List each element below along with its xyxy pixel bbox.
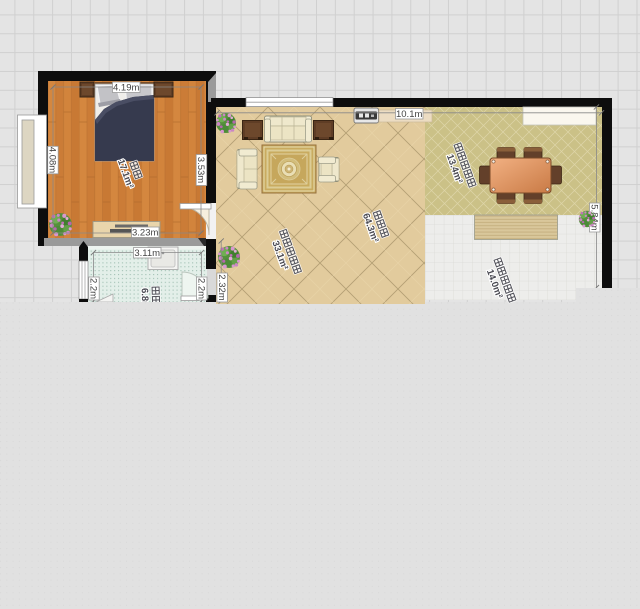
svg-text:2.2m: 2.2m [88, 278, 99, 299]
svg-text:3.23m: 3.23m [132, 227, 158, 238]
svg-text:4.19m: 4.19m [113, 82, 139, 93]
svg-text:2.32m: 2.32m [216, 274, 227, 300]
svg-text:3.53m: 3.53m [195, 157, 206, 183]
svg-text:3.11m: 3.11m [134, 248, 160, 259]
svg-text:4.08m: 4.08m [47, 147, 58, 173]
svg-text:2.2m: 2.2m [196, 278, 207, 299]
svg-text:10.1m: 10.1m [396, 109, 422, 120]
